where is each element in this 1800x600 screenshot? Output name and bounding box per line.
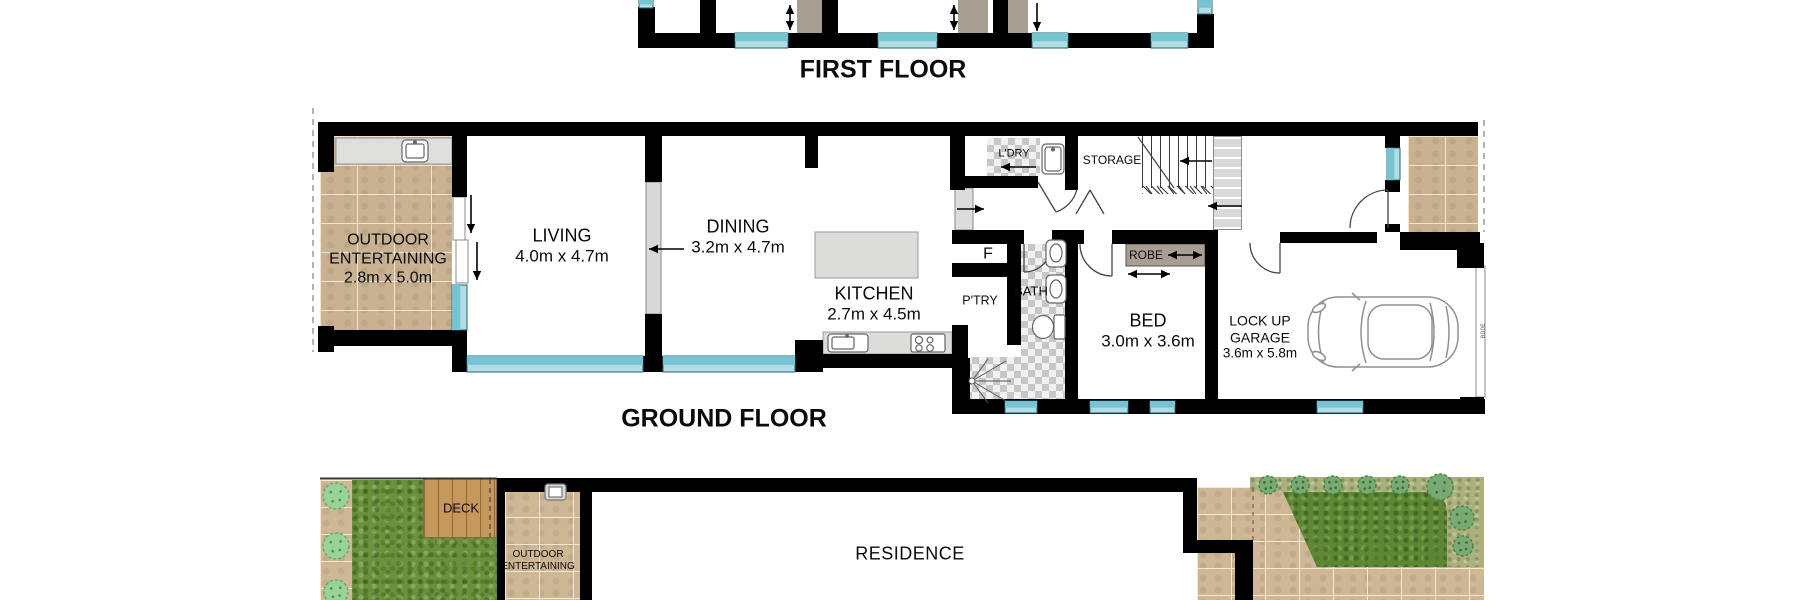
window-glass [467,356,643,365]
wardrobe-block [797,0,822,33]
wardrobe-block [1008,0,1028,33]
window-glass [878,33,937,41]
arrow [649,245,684,253]
window-glass [663,356,795,365]
wall-segment [1385,224,1400,232]
wall-segment [1188,33,1214,48]
wall-segment [937,33,1032,48]
wall-segment [823,354,955,368]
room-label-garage: LOCK UP GARAGE 3.6m x 5.8m [1214,313,1306,362]
room-label-laundry: L'DRY [998,148,1029,161]
room-label-kitchen: KITCHEN 2.7m x 4.5m [827,283,921,324]
wall-segment [952,325,968,360]
window-glass [735,33,788,41]
site-label-deck: DECK [443,500,479,515]
arrow-head [1168,251,1177,259]
window-frame [1150,401,1175,413]
window-frame [878,33,937,48]
wardrobe-block [958,0,988,33]
wall-segment [788,33,878,48]
window-glass [452,285,460,330]
room-name: DINING [691,216,785,237]
wall-segment [1112,230,1218,244]
room-label-living: LIVING 4.0m x 4.7m [515,225,609,266]
bath-floor [1021,244,1065,403]
wall-segment [452,122,467,197]
wall-segment [497,478,1183,492]
window-frame [1151,33,1188,48]
site-label-outdoor-entertaining: OUTDOOR ENTERTAINING [498,549,578,573]
window-glass [1317,401,1363,408]
wall-segment [645,314,662,372]
room-label-outdoor-entertaining: OUTDOOR ENTERTAINING 2.8m x 5.0m [322,232,454,289]
window-glass [1150,401,1175,408]
bed-door-swing [1080,244,1112,276]
window-frame [1032,33,1068,48]
window-frame [1317,401,1363,413]
arrow-head [467,224,475,233]
car-icon [1308,293,1458,371]
laundry-tub-icon [1042,144,1064,174]
wall-segment [643,356,663,372]
window-frame [735,33,788,48]
window-glass [1151,33,1188,41]
wall-segment [1183,478,1197,553]
wall-segment [580,490,592,600]
wall-segment [795,340,823,372]
garage-door-dimension: 3008 [1477,323,1484,338]
room-dims: 2.7m x 4.5m [827,305,921,325]
wall-segment [1065,136,1078,190]
stairs-upper-run [1213,136,1242,230]
window-glass [1032,33,1068,41]
room-dims: 3.2m x 4.7m [691,238,785,258]
room-name: LIVING [515,225,609,246]
wall-segment [655,33,735,48]
site-garden-bed-top [1250,477,1484,492]
window [1198,0,1212,14]
arrow [467,195,475,233]
arrow [950,5,958,30]
window-frame [1198,0,1212,14]
wall-segment [1065,230,1078,403]
arrow-head [1193,251,1202,259]
window [1387,148,1400,180]
window [467,356,643,372]
window [1317,401,1363,413]
arrow-head [975,205,984,213]
window-frame [639,0,653,8]
arrow-head [950,21,958,30]
wall-segment [1385,136,1400,148]
arrow [786,5,794,30]
site-label-residence: RESIDENCE [855,543,965,564]
first-floor-title: FIRST FLOOR [800,55,967,85]
room-dims: 4.0m x 4.7m [515,247,609,267]
stairs-break-hatch [1142,186,1213,194]
arrow-head [786,5,794,14]
wall-segment [952,230,1024,244]
door-swings [1024,182,1388,276]
wall-segment [1385,180,1400,192]
window [878,33,937,48]
arrow-head [950,5,958,14]
shower-floor [965,357,1021,403]
wall-segment [700,0,716,33]
room-label-fridge: F [983,246,993,265]
room-name: OUTDOOR ENTERTAINING [322,232,454,270]
wall-segment [638,7,655,48]
stairs-lower-run [1142,136,1213,188]
room-name: KITCHEN [827,283,921,304]
window-glass [1198,0,1212,8]
arrow [473,242,481,280]
arrow-head [473,271,481,280]
arrow-head [1128,270,1137,278]
room-dims: 3.6m x 5.8m [1214,346,1306,362]
wall-segment [645,136,662,182]
wall-segment [1280,232,1377,243]
room-label-dining: DINING 3.2m x 4.7m [691,216,785,257]
laundry-door-swing [1038,182,1077,212]
room-dims: 3.0m x 3.6m [1101,332,1195,352]
stacker-door-panel [453,197,465,240]
kitchen-island [815,232,918,278]
sliding-door-panel [646,182,661,314]
room-label-pantry: P'TRY [962,294,998,309]
site-garden-bed-right [1447,492,1484,567]
arrow-head [786,21,794,30]
window-frame [452,285,467,330]
fixtures [402,140,1066,500]
room-label-robe: ROBE [1129,248,1163,262]
wall-segment [1078,230,1084,244]
kitchen-bench [823,332,952,354]
room-label-bath: BATH [1014,283,1048,298]
window [1090,401,1128,413]
window-frame [467,356,643,372]
window [1032,33,1068,48]
wall-segment [318,122,1478,136]
arrow [1168,251,1202,259]
room-label-storage: STORAGE [1083,153,1141,167]
window-glass [1090,401,1128,408]
room-name: LOCK UP GARAGE [1214,313,1306,346]
window [1151,33,1188,48]
window-glass [1387,148,1394,180]
arrow [1128,270,1170,278]
garage-door-swing [1250,243,1280,273]
wall-segment [952,263,1008,277]
arrow-head [1161,270,1170,278]
wall-segment [955,176,1038,188]
ground-floor-title: GROUND FLOOR [621,404,827,434]
wall-segment [950,136,965,190]
arrow-head [649,245,658,253]
kitchen-sink-icon [828,334,868,352]
window-frame [663,356,795,372]
wall-segment [822,0,838,33]
window [452,285,467,330]
storage-door-swing [1076,190,1104,214]
arrow-head [1033,22,1041,31]
stacker-door-panel [456,240,468,283]
window-frame [1387,148,1400,180]
window-glass [639,0,653,4]
window [663,356,795,372]
floorplan-canvas: FIRST FLOOR OUTDOOR ENTERTAINING 2.8m x … [0,0,1800,600]
window-frame [1090,401,1128,413]
wall-segment [805,136,818,168]
cooktop-icon [911,334,945,352]
front-door-swing [1350,190,1388,228]
room-name: BED [1101,310,1195,331]
site-outdoor-entertaining-paving [505,490,580,600]
room-dims: 2.8m x 5.0m [322,269,454,288]
window [735,33,788,48]
arrow [957,205,984,213]
window [639,0,653,8]
site-left-path-paving [320,480,352,600]
wall-segment [497,478,505,600]
wall-segment [1460,397,1484,414]
wall-segment [993,0,1008,33]
arrow [1033,3,1041,31]
wall-segment [1052,230,1078,244]
cavity-slider-panel [955,188,973,230]
window [1150,401,1175,413]
wall-segment [1197,14,1214,33]
room-label-bed: BED 3.0m x 3.6m [1101,310,1195,351]
wall-segment [452,330,467,372]
wall-segment [1068,33,1151,48]
entry-porch-paving [1408,136,1478,247]
